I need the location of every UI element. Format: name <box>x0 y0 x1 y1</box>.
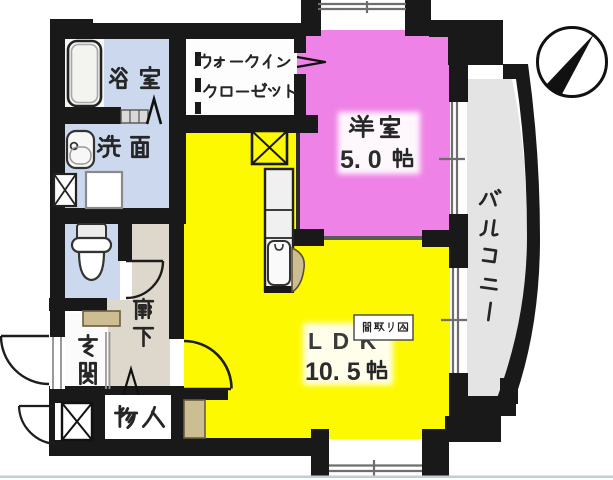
svg-text:10. 5: 10. 5 <box>305 358 361 386</box>
svg-text:5. 0: 5. 0 <box>340 146 382 174</box>
